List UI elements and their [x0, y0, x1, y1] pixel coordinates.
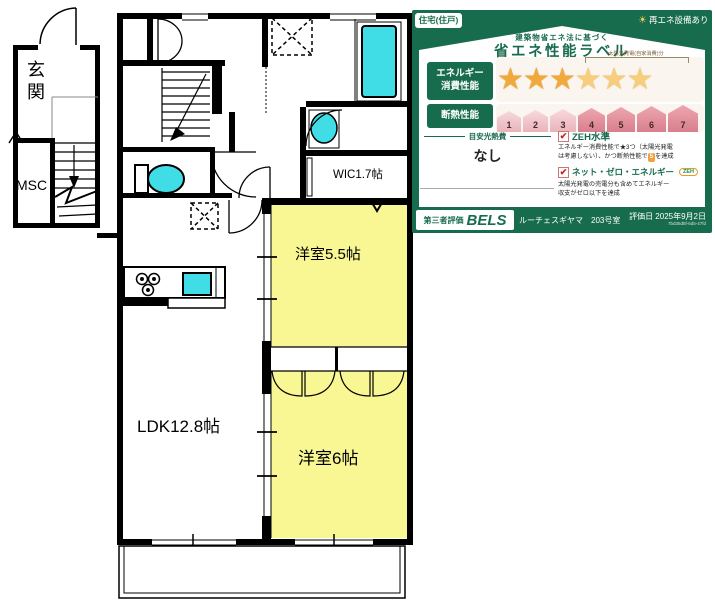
- room-label-bedroom1: 洋室5.5帖: [295, 243, 361, 264]
- evaluation-code: 7bd35d5f-6d5-47fd: [596, 221, 706, 226]
- net-zero-title: ネット・ゼロ・エネルギー: [572, 166, 674, 178]
- star-icon: ★: [549, 65, 575, 95]
- check-icon: ✔: [558, 131, 569, 142]
- energy-performance-label: エネルギー 消費性能: [427, 62, 493, 100]
- grade-badge: 5: [648, 153, 655, 162]
- utility-cost-value: なし: [420, 146, 555, 166]
- toilet-icon: [135, 165, 184, 193]
- shield-badge-1: 1: [497, 111, 521, 132]
- utility-cost-title: 目安光熱費: [420, 131, 555, 142]
- third-party-label: 第三者評価: [423, 215, 463, 226]
- insulation-label: 断熱性能: [427, 104, 493, 128]
- divider: [420, 188, 554, 189]
- energy-stars: ★ ★ ★ ★ ★ ★: [497, 60, 703, 100]
- zeh-level-row: ✔ ZEH水準: [558, 129, 610, 143]
- balcony: [119, 546, 405, 598]
- zeh-level-title: ZEH水準: [572, 129, 610, 143]
- washbasin-icon: [306, 110, 342, 148]
- shield-badge-5: 5: [607, 107, 635, 132]
- sun-icon: ☀: [638, 15, 647, 26]
- room-label-wic: WIC1.7帖: [333, 166, 383, 182]
- star-solar-icon: ★: [601, 65, 627, 95]
- net-zero-row: ✔ ネット・ゼロ・エネルギー ZEH: [558, 166, 698, 178]
- wic-door: [307, 158, 312, 196]
- dwelling-type-badge: 住宅(住戸): [415, 13, 462, 28]
- room-label-bedroom2: 洋室6帖: [298, 444, 358, 469]
- shield-badge-6: 6: [637, 106, 666, 132]
- shield-badge-2: 2: [523, 110, 548, 132]
- insulation-shields: 1 2 3 4 5 6 7: [497, 103, 704, 132]
- renewable-badge-label: 再エネ設備あり: [649, 15, 709, 25]
- zeh-level-desc: エネルギー消費性能で★3つ（太陽光発電 は考慮しない）、かつ断熱性能で5を達成: [558, 143, 674, 162]
- check-icon: ✔: [558, 167, 569, 178]
- porch-wall: [97, 233, 120, 238]
- solar-bracket-label: 太陽光発電(自家消費)分: [585, 50, 687, 57]
- kitchen-sink-icon: [183, 273, 211, 295]
- zeh-badge-icon: ZEH: [679, 168, 698, 176]
- room-label-genkan: 玄関: [22, 60, 48, 104]
- solar-bracket: [585, 57, 689, 63]
- bathtub-icon: [355, 19, 401, 101]
- shield-badge-7: 7: [668, 105, 698, 132]
- bels-brand: BELS: [466, 212, 506, 229]
- main-stairs: [162, 68, 210, 142]
- door-arcs: [158, 19, 270, 233]
- star-solar-icon: ★: [575, 65, 601, 95]
- renewable-badge: ☀再エネ設備あり: [638, 14, 708, 27]
- room-label-msc: MSC: [16, 177, 47, 193]
- star-icon: ★: [523, 65, 549, 95]
- star-solar-icon: ★: [627, 65, 653, 95]
- net-zero-desc: 太陽光発電の売電分も含めてエネルギー 収支がゼロ以下を達成: [558, 180, 669, 199]
- screenshot-root: 玄関 MSC WIC1.7帖 洋室5.5帖 LDK12.8帖 洋室6帖 住宅(住…: [0, 0, 715, 613]
- bels-logo: 第三者評価 BELS: [416, 210, 514, 230]
- room-label-ldk: LDK12.8帖: [137, 412, 220, 437]
- star-icon: ★: [497, 65, 523, 95]
